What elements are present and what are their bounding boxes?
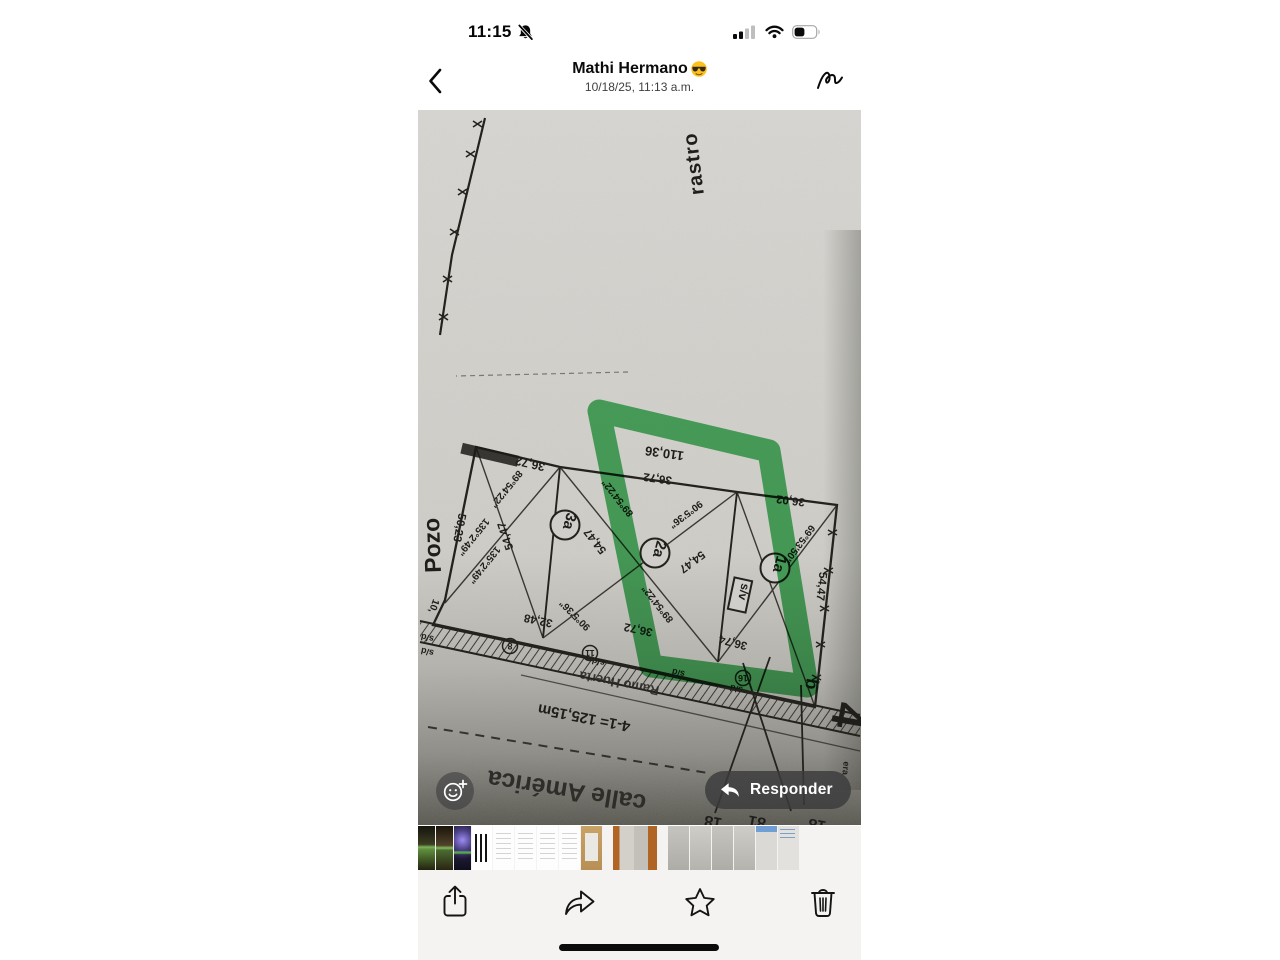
photo-thumbnail[interactable] [436, 826, 453, 870]
share-button[interactable] [433, 880, 477, 924]
cellular-signal-icon [733, 25, 757, 39]
share-icon [440, 884, 470, 920]
media-thumbnail-strip [418, 826, 861, 872]
media-viewer-header: Mathi Hermano 10/18/25, 11:13 a.m. [418, 54, 861, 110]
responder-label: Responder [750, 781, 833, 799]
scan-thumbnail[interactable] [668, 826, 689, 870]
sunglasses-emoji [691, 61, 707, 77]
message-timestamp: 10/18/25, 11:13 a.m. [478, 80, 801, 94]
photo-viewer[interactable]: rastro Pozo calle América Ramo Huerta 4-… [418, 110, 861, 825]
status-bar: 11:15 [418, 0, 861, 54]
scan-thumbnail[interactable] [734, 826, 755, 870]
star-icon [683, 886, 717, 919]
scan-thumbnail[interactable] [690, 826, 711, 870]
trash-icon [808, 885, 838, 919]
bottom-toolbar [418, 872, 861, 960]
photo-thumbnail[interactable] [581, 826, 602, 870]
status-indicators [733, 24, 821, 39]
forward-button[interactable] [558, 880, 602, 924]
sender-name: Mathi Hermano [572, 60, 688, 78]
add-emoji-reaction-button[interactable] [436, 772, 474, 810]
responder-button[interactable]: Responder [705, 771, 851, 809]
photo-thumbnail[interactable] [454, 826, 471, 870]
screenshot-canvas: 11:15 [0, 0, 1280, 960]
map-marker-number: 8 [507, 641, 512, 651]
document-thumbnail[interactable] [559, 826, 580, 870]
wifi-icon [764, 24, 785, 39]
map-marker-number: 11 [585, 648, 595, 658]
document-thumbnail[interactable] [493, 826, 514, 870]
bell-slash-icon [517, 24, 534, 46]
audio-thumbnail[interactable] [472, 826, 492, 870]
map-label-pozo: Pozo [418, 517, 446, 573]
delete-button[interactable] [801, 880, 845, 924]
photo-thumbnail[interactable] [613, 826, 657, 870]
sender-info[interactable]: Mathi Hermano 10/18/25, 11:13 a.m. [478, 60, 801, 94]
scan-thumbnail[interactable] [756, 826, 777, 870]
battery-icon [792, 25, 821, 39]
back-button[interactable] [428, 68, 458, 98]
reply-arrow-icon [719, 781, 741, 799]
home-indicator[interactable] [559, 944, 719, 951]
document-thumbnail[interactable] [515, 826, 536, 870]
document-thumbnail[interactable] [537, 826, 558, 870]
scribble-markup-icon[interactable] [815, 66, 849, 96]
phone-screen: 11:15 [418, 0, 861, 960]
clock: 11:15 [468, 22, 512, 42]
scan-thumbnail[interactable] [712, 826, 733, 870]
scan-thumbnail[interactable] [778, 826, 799, 870]
survey-map-image: rastro Pozo calle América Ramo Huerta 4-… [418, 110, 861, 825]
forward-arrow-icon [562, 887, 598, 917]
add-emoji-reaction-icon [442, 779, 468, 803]
star-button[interactable] [678, 880, 722, 924]
photo-thumbnail[interactable] [418, 826, 435, 870]
